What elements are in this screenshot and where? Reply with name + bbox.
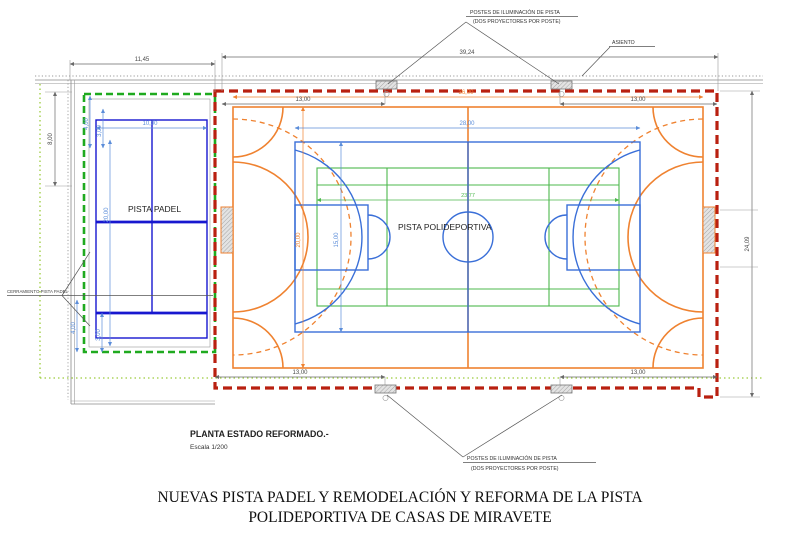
padel-court-label: PISTA PADEL: [128, 204, 181, 214]
dim-padel-wall-top-b: 3,00: [97, 125, 103, 137]
three-point-right: [573, 150, 640, 324]
dim-left-height: 8,00: [48, 133, 54, 145]
polideportiva-court-label: PISTA POLIDEPORTIVA: [398, 222, 492, 232]
goal-left: [221, 207, 233, 253]
key-left: [295, 205, 368, 270]
dim-basketball-width: 15,00: [334, 232, 340, 248]
drawing-title: NUEVAS PISTA PADEL Y REMODELACIÓN Y REFO…: [157, 489, 643, 526]
postes-annotation-top: POSTES DE ILUMINACIÓN DE PISTA (DOS PROY…: [388, 9, 578, 84]
dim-top-left-span: 13,00: [295, 97, 311, 103]
goal-right: [703, 207, 715, 253]
dim-top-right-span: 13,00: [630, 97, 646, 103]
dim-total-width: 39,24: [459, 50, 475, 56]
postes-annotation-bottom: POSTES DE ILUMINACIÓN DE PISTA (DOS PROY…: [387, 395, 596, 472]
light-post-bottom-left: [375, 385, 396, 393]
key-right: [567, 205, 640, 270]
postes-bottom-line2: (DOS PROYECTORES POR POSTE): [471, 466, 559, 472]
lighting-posts: [375, 81, 572, 401]
asiento-label: ASIENTO: [612, 40, 635, 46]
dim-padel-length: 20,00: [104, 207, 110, 223]
plan-sheet: PISTA PADEL 10,00 4,00 3,00 20,00 4,00 3…: [0, 0, 800, 534]
light-post-bottom-right: [551, 385, 572, 393]
title-line2: POLIDEPORTIVA DE CASAS DE MIRAVETE: [248, 509, 551, 526]
light-post-top-left: [376, 81, 397, 89]
title-line1: NUEVAS PISTA PADEL Y REMODELACIÓN Y REFO…: [157, 489, 643, 506]
postes-top-line2: (DOS PROYECTORES POR POSTE): [473, 19, 561, 25]
dim-padel-wall-bottom-a: 4,00: [71, 322, 77, 334]
basketball-court: PISTA POLIDEPORTIVA: [295, 142, 640, 332]
dim-orange-height: 20,00: [296, 232, 302, 248]
dim-padel-wall-bottom-b: 3,00: [96, 329, 102, 341]
plan-caption: PLANTA ESTADO REFORMADO.- Escala 1/200: [190, 429, 329, 451]
dim-orange-width: 36,00: [458, 90, 474, 96]
dim-padel-width: 10,00: [142, 121, 158, 127]
dim-padel-zone-width: 11,45: [135, 57, 150, 63]
asiento-annotation: ASIENTO: [582, 40, 655, 76]
dim-basketball-length: 28,00: [459, 121, 475, 127]
planta-label: PLANTA ESTADO REFORMADO.-: [190, 429, 329, 439]
plan-drawing: PISTA PADEL 10,00 4,00 3,00 20,00 4,00 3…: [0, 0, 800, 534]
dim-bottom-right-span: 13,00: [630, 370, 646, 376]
dim-bottom-left-span: 13,00: [292, 370, 308, 376]
light-post-top-right: [551, 81, 572, 89]
cerramiento-label: CERRAMIENTO PISTA PADEL: [7, 289, 69, 294]
dim-right-height: 24,09: [745, 236, 751, 252]
escala-label: Escala 1/200: [190, 444, 228, 451]
three-point-left: [295, 150, 362, 324]
postes-bottom-line1: POSTES DE ILUMINACIÓN DE PISTA: [467, 455, 557, 462]
dim-padel-wall-top-a: 4,00: [84, 118, 90, 130]
goal-area-right: [628, 162, 703, 312]
postes-top-line1: POSTES DE ILUMINACIÓN DE PISTA: [470, 9, 560, 16]
